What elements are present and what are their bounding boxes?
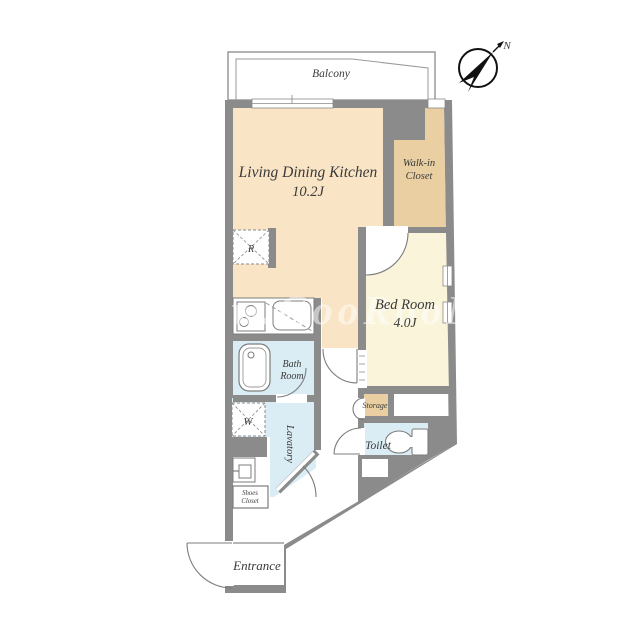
wall-bedroom-bottom xyxy=(358,386,449,394)
wall-under-washer xyxy=(232,437,267,457)
wall-ldk-closet xyxy=(383,140,394,233)
lavatory-label: Lavatory xyxy=(284,424,295,463)
ldk-size-label: 10.2J xyxy=(292,184,324,200)
wall-storage-right xyxy=(388,394,394,416)
wall-top-right-block xyxy=(383,108,425,140)
closet-door-gap xyxy=(366,226,408,234)
watermark: w.GooRooM xyxy=(232,287,489,333)
bedroom-label: Bed Room xyxy=(375,297,435,313)
bath-label-1: Bath xyxy=(283,359,302,370)
wall-bath-top xyxy=(233,334,321,341)
floor-plan: N w.GooRooM Balcony Living Dining Kitche… xyxy=(0,0,640,640)
wall-hall-storage-a xyxy=(358,394,364,398)
bathtub-outer xyxy=(239,344,270,391)
bath-door-gap xyxy=(276,394,307,403)
ldk-label: Living Dining Kitchen xyxy=(238,164,378,181)
pipe-space-box xyxy=(362,459,388,477)
shoes-closet-label-1: Shoes xyxy=(242,490,258,497)
entrance-label: Entrance xyxy=(232,558,281,573)
storage-label: Storage xyxy=(363,401,388,410)
bath-label-2: Room xyxy=(279,371,303,382)
bedroom-size-label: 4.0J xyxy=(394,315,418,330)
walk-in-closet-label-2: Closet xyxy=(406,171,434,182)
balcony-label: Balcony xyxy=(312,68,351,80)
compass-north-label: N xyxy=(502,40,511,52)
closet-top-window xyxy=(428,99,445,108)
toilet-tank xyxy=(412,429,428,455)
bathtub xyxy=(239,344,270,391)
shoes-closet-label-2: Closet xyxy=(241,498,259,505)
toilet-door-gap xyxy=(357,428,365,455)
toilet-joint xyxy=(407,437,414,447)
floor-plan-canvas: N w.GooRooM Balcony Living Dining Kitche… xyxy=(0,0,640,640)
toilet-fixture xyxy=(386,429,429,455)
toilet-label: Toilet xyxy=(365,440,392,452)
refrigerator-label: R xyxy=(247,244,254,255)
walk-in-closet-label-1: Walk-in xyxy=(403,158,435,169)
lavatory-sink xyxy=(233,458,255,482)
wall-toilet-top xyxy=(358,416,449,423)
washer-label: W xyxy=(243,416,253,428)
